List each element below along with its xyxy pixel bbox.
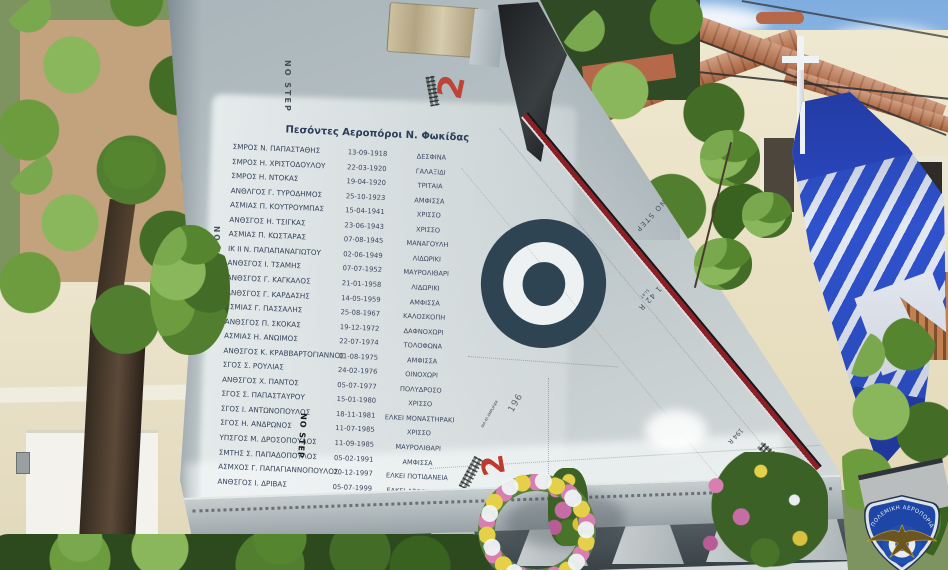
memorial-date: 19-12-1972: [336, 323, 382, 333]
memorial-date: 14-05-1959: [338, 293, 384, 303]
memorial-date: 21-01-1958: [338, 279, 384, 289]
memorial-date: 02-06-1949: [340, 250, 386, 260]
tip-fairing-silver: [469, 9, 505, 68]
memorial-place: ΑΜΦΙΣΣΑ: [382, 457, 452, 468]
memorial-place: ΛΙΔΩΡΙΚΙ: [392, 253, 462, 264]
branch-leaves: [742, 192, 792, 238]
memorial-place: ΑΜΦΙΣΣΑ: [390, 297, 460, 308]
memorial-place: ΟΙΝΟΧΩΡΙ: [386, 370, 456, 381]
memorial-text: Πεσόντες Αεροπόροι Ν. Φωκίδας ΣΜΡΟΣ Ν. Π…: [214, 118, 469, 518]
memorial-place: ΚΑΛΟΣΚΟΠΗ: [389, 311, 459, 322]
flower-bush-right: [688, 452, 828, 570]
memorial-place: ΠΟΛΥΔΡΟΣΟ: [386, 384, 456, 395]
memorial-date: 24-02-1976: [334, 366, 380, 376]
roof-ridge: [756, 12, 804, 24]
memorial-date: 07-08-1945: [340, 235, 386, 245]
antenna-panel: [386, 2, 479, 58]
branch-leaves: [700, 130, 760, 186]
memorial-wreath: [478, 474, 596, 570]
memorial-place: ΜΑΥΡΟΛΙΘΑΡΙ: [391, 268, 461, 279]
memorial-place: ΤΡΙΤΑΙΑ: [395, 181, 465, 192]
memorial-date: 22-03-1920: [344, 163, 390, 173]
air-force-emblem: ΠΟΛΕΜΙΚΗ ΑΕΡΟΠΟΡΙΑ: [856, 494, 948, 570]
memorial-place: ΓΑΛΑΞΙΔΙ: [396, 166, 466, 177]
memorial-date: 11-09-1985: [331, 439, 377, 449]
memorial-place: ΕΛΚΕΙ ΠΟΤΙΔΑΝΕΙΑ: [382, 471, 452, 482]
memorial-place: ΧΡΙΣΣΟ: [394, 210, 464, 221]
photo-scene: NO STEP NO STEP NO STEP NO STEP 2 2 2 1 …: [0, 0, 948, 570]
branch-leaves: [694, 238, 752, 290]
memorial-place: ΜΑΥΡΟΛΙΘΑΡΙ: [383, 442, 453, 453]
slat-label: SLAT: [621, 269, 668, 319]
flagpole-cross: [797, 36, 804, 70]
memorial-date: 25-08-1967: [337, 308, 383, 318]
rivet-line: [548, 378, 550, 478]
memorial-name: ΣΜΡΟΣ Ν. ΠΑΠΑΣΤΑΘΗΣ: [233, 142, 351, 156]
memorial-date: 25-10-1923: [342, 192, 388, 202]
memorial-place: ΜΑΝΑΓΟΥΛΗ: [392, 239, 462, 250]
memorial-place: ΑΜΦΙΣΣΑ: [394, 195, 464, 206]
memorial-date: 05-02-1991: [331, 453, 377, 463]
memorial-place: ΛΙΔΩΡΙΚΙ: [390, 282, 460, 293]
memorial-place: ΧΡΙΣΣΟ: [385, 399, 455, 410]
roundel-white-ring: [498, 237, 589, 330]
memorial-place: ΤΟΛΟΦΩΝΑ: [388, 340, 458, 351]
memorial-place: ΧΡΙΣΣΟ: [384, 428, 454, 439]
hedge-bottom: [0, 534, 490, 570]
foliage-over-tail-edge: [150, 225, 230, 355]
memorial-date: 11-08-1975: [335, 352, 381, 362]
memorial-date: 19-04-1920: [343, 177, 389, 187]
intercom-box: [16, 452, 30, 474]
memorial-date: 22-07-1974: [336, 337, 382, 347]
memorial-date: 13-09-1918: [344, 148, 390, 158]
memorial-place: ΧΡΙΣΣΟ: [393, 224, 463, 235]
memorial-date: 15-04-1941: [342, 206, 388, 216]
memorial-rows: ΣΜΡΟΣ Ν. ΠΑΠΑΣΤΑΘΗΣ 13-09-1918 ΔΕΣΦΙΝΑ Σ…: [214, 118, 469, 518]
slat-marking: 1 42 R SLAT: [621, 269, 675, 325]
memorial-place: ΔΑΦΝΟΧΩΡΙ: [388, 326, 458, 337]
memorial-date: 05-07-1977: [334, 381, 380, 391]
slat-id: 1 42 R: [625, 272, 675, 325]
memorial-place: ΕΛΚΕΙ ΜΟΝΑΣΤΗΡΑΚΙ: [384, 413, 454, 424]
memorial-date: 18-11-1981: [333, 410, 379, 420]
memorial-date: 23-06-1943: [341, 221, 387, 231]
memorial-date: 07-07-1952: [339, 264, 385, 274]
light-flare: [645, 410, 707, 452]
memorial-date: 15-01-1980: [333, 395, 379, 405]
memorial-place: ΑΜΦΙΣΣΑ: [387, 355, 457, 366]
memorial-date: 20-12-1997: [330, 468, 376, 478]
memorial-place: ΔΕΣΦΙΝΑ: [396, 152, 466, 163]
memorial-date: 11-07-1985: [332, 424, 378, 434]
flagpole-cross-arm: [782, 56, 819, 63]
